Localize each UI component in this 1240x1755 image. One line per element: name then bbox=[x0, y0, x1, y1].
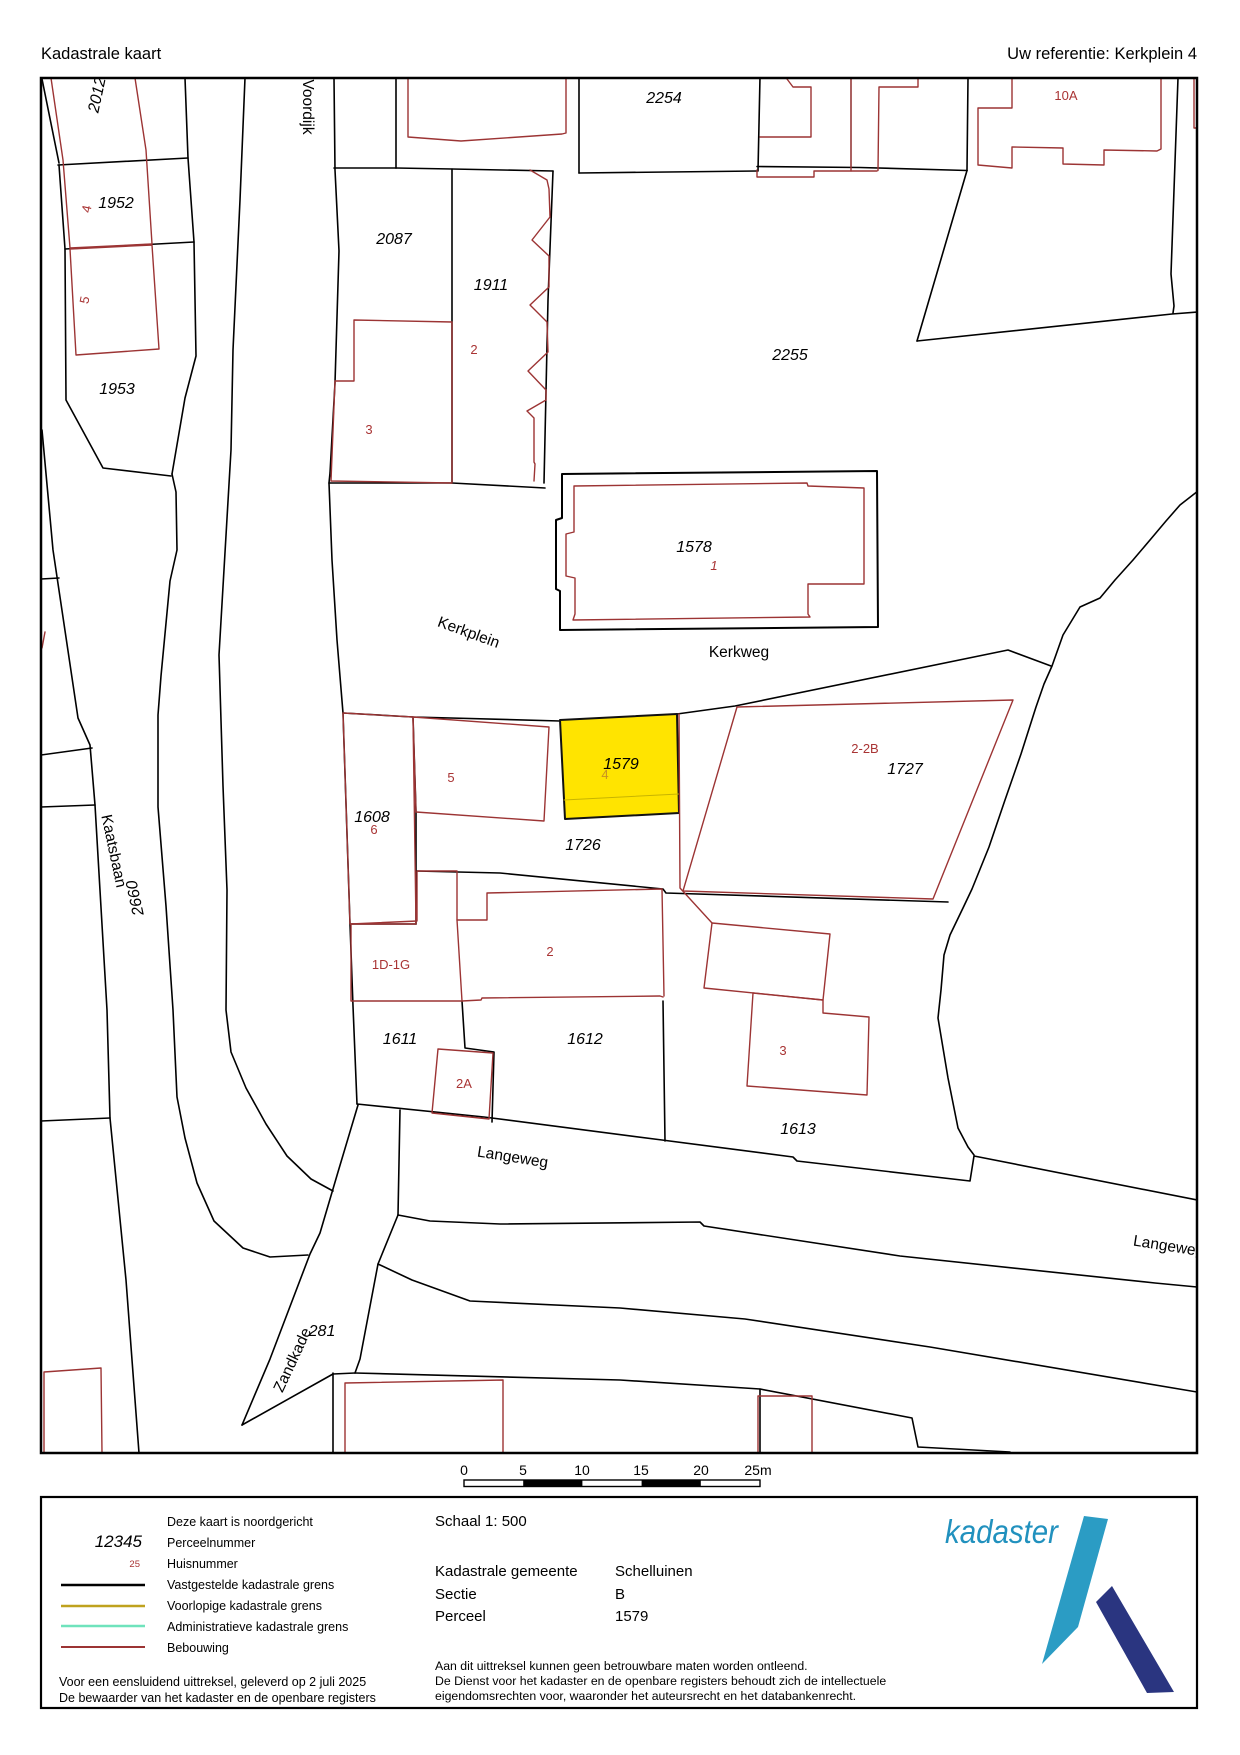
svg-text:Langeweg: Langeweg bbox=[1132, 1233, 1205, 1261]
svg-text:Uw referentie: Kerkplein 4: Uw referentie: Kerkplein 4 bbox=[1007, 45, 1197, 63]
svg-text:6: 6 bbox=[370, 822, 377, 837]
svg-text:Kadastrale kaart: Kadastrale kaart bbox=[41, 45, 162, 63]
svg-text:25: 25 bbox=[129, 1559, 140, 1570]
svg-text:3: 3 bbox=[365, 422, 372, 437]
svg-text:1727: 1727 bbox=[887, 761, 924, 778]
svg-text:1726: 1726 bbox=[565, 837, 601, 854]
svg-text:Perceel: Perceel bbox=[435, 1608, 486, 1625]
svg-text:1579: 1579 bbox=[615, 1608, 648, 1625]
svg-text:2087: 2087 bbox=[375, 231, 413, 248]
svg-text:25m: 25m bbox=[744, 1462, 771, 1478]
svg-text:0: 0 bbox=[460, 1462, 468, 1478]
svg-text:2A: 2A bbox=[456, 1076, 472, 1091]
svg-text:B: B bbox=[615, 1586, 625, 1603]
svg-text:Bebouwing: Bebouwing bbox=[167, 1641, 229, 1655]
svg-text:10: 10 bbox=[574, 1462, 590, 1478]
svg-text:2254: 2254 bbox=[645, 90, 682, 107]
svg-text:Zandkade: Zandkade bbox=[271, 1325, 316, 1395]
svg-text:1D-1G: 1D-1G bbox=[372, 957, 410, 972]
svg-text:1952: 1952 bbox=[98, 195, 134, 212]
svg-text:5: 5 bbox=[519, 1462, 527, 1478]
svg-text:1612: 1612 bbox=[567, 1031, 603, 1048]
svg-text:kadaster: kadaster bbox=[945, 1513, 1060, 1550]
svg-text:Kerkweg: Kerkweg bbox=[709, 644, 769, 661]
svg-text:De Dienst voor het kadaster en: De Dienst voor het kadaster en de openba… bbox=[435, 1674, 886, 1688]
svg-text:4: 4 bbox=[601, 767, 608, 782]
svg-text:eigendomsrechten voor, waarond: eigendomsrechten voor, waaronder het aut… bbox=[435, 1689, 856, 1703]
svg-text:Huisnummer: Huisnummer bbox=[167, 1557, 238, 1571]
svg-text:Aan dit uittreksel kunnen geen: Aan dit uittreksel kunnen geen betrouwba… bbox=[435, 1659, 808, 1673]
svg-text:Perceelnummer: Perceelnummer bbox=[167, 1536, 255, 1550]
svg-text:1611: 1611 bbox=[383, 1031, 417, 1048]
svg-text:1578: 1578 bbox=[676, 539, 712, 556]
svg-text:Voor een eensluidend uittrekse: Voor een eensluidend uittreksel, gelever… bbox=[59, 1675, 366, 1689]
svg-text:Schelluinen: Schelluinen bbox=[615, 1563, 693, 1580]
svg-text:2012: 2012 bbox=[85, 76, 109, 115]
svg-text:1911: 1911 bbox=[474, 277, 508, 294]
svg-text:Schaal 1: 500: Schaal 1: 500 bbox=[435, 1513, 527, 1530]
svg-text:Kadastrale gemeente: Kadastrale gemeente bbox=[435, 1563, 578, 1580]
svg-text:20: 20 bbox=[693, 1462, 709, 1478]
svg-text:5: 5 bbox=[76, 295, 92, 305]
svg-text:2-2B: 2-2B bbox=[851, 741, 878, 756]
svg-text:Administratieve kadastrale gre: Administratieve kadastrale grens bbox=[167, 1620, 348, 1634]
svg-text:Sectie: Sectie bbox=[435, 1586, 477, 1603]
svg-text:2255: 2255 bbox=[771, 347, 808, 364]
svg-text:Voordijk: Voordijk bbox=[299, 79, 316, 134]
svg-text:Kaatsbaan: Kaatsbaan bbox=[97, 813, 129, 889]
svg-text:4: 4 bbox=[78, 204, 94, 214]
svg-text:12345: 12345 bbox=[95, 1532, 143, 1551]
svg-text:2660: 2660 bbox=[124, 879, 148, 918]
svg-text:Voorlopige kadastrale grens: Voorlopige kadastrale grens bbox=[167, 1599, 322, 1613]
svg-text:1: 1 bbox=[710, 558, 717, 573]
svg-text:Kerkplein: Kerkplein bbox=[435, 614, 502, 652]
svg-text:2: 2 bbox=[470, 342, 477, 357]
svg-text:De bewaarder van het kadaster: De bewaarder van het kadaster en de open… bbox=[59, 1691, 376, 1705]
svg-text:2: 2 bbox=[546, 944, 553, 959]
svg-text:1613: 1613 bbox=[780, 1121, 816, 1138]
svg-text:Langeweg: Langeweg bbox=[476, 1144, 549, 1172]
svg-text:Vastgestelde kadastrale grens: Vastgestelde kadastrale grens bbox=[167, 1578, 334, 1592]
svg-text:1953: 1953 bbox=[99, 381, 135, 398]
svg-text:Deze kaart is noordgericht: Deze kaart is noordgericht bbox=[167, 1515, 313, 1529]
svg-text:5: 5 bbox=[447, 770, 454, 785]
svg-text:3: 3 bbox=[779, 1043, 786, 1058]
svg-text:10A: 10A bbox=[1054, 88, 1077, 103]
svg-text:15: 15 bbox=[633, 1462, 649, 1478]
